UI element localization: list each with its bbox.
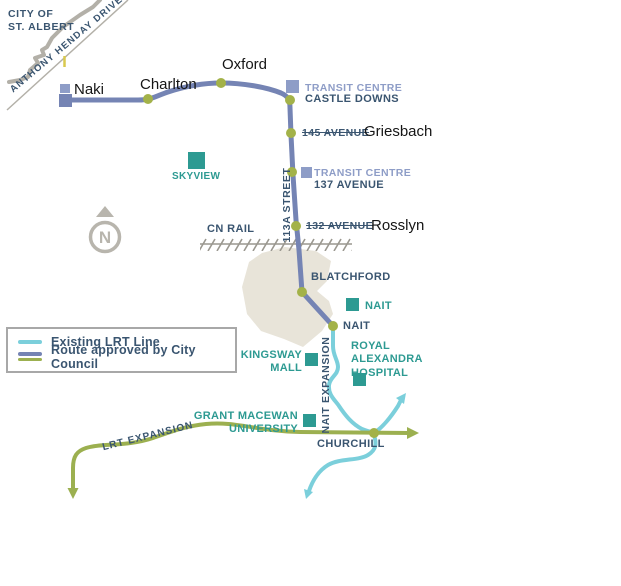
skyview-label: SKYVIEW [172, 171, 220, 182]
charlton-station-label: Charlton [140, 76, 197, 93]
kingsway-mall-square [305, 353, 318, 366]
rosslyn-station-label: Rosslyn [371, 217, 424, 234]
castle-downs-station-dot [285, 95, 295, 105]
legend: Existing LRT Line Route approved by City… [6, 327, 237, 373]
nait-station-dot [328, 321, 338, 331]
nait-station-label: NAIT [343, 320, 370, 332]
castle-downs-transit-centre-square [286, 80, 299, 93]
137-avenue-station-label: 137 AVENUE [314, 179, 384, 191]
griesbach-former-name-label: 145 AVENUE [302, 127, 369, 139]
skyview-square [188, 152, 205, 169]
137-avenue-transit-centre-square [301, 167, 312, 178]
city-of-st-albert-label: CITY OF ST. ALBERT [8, 8, 74, 34]
grant-macewan-university-label: GRANT MACEWAN UNIVERSITY [188, 410, 298, 437]
nait-landmark-label: NAIT [365, 300, 392, 312]
griesbach-station-dot [286, 128, 296, 138]
nait-square [346, 298, 359, 311]
naki-terminus-square [59, 94, 72, 107]
legend-approved-route-label: Route approved by City Council [51, 343, 235, 371]
rosslyn-former-name-label: 132 AVENUE [306, 220, 373, 232]
legend-item-approved-route: Route approved by City Council [18, 349, 235, 364]
cn-rail-label: CN RAIL [207, 223, 254, 235]
existing-lrt-swatch-icon [18, 340, 42, 344]
churchill-station-label: CHURCHILL [317, 438, 385, 450]
approved-route-swatch-icon [18, 352, 42, 361]
north-arrow-icon [96, 206, 114, 217]
blatchford-station-dot [297, 287, 307, 297]
113a-street-label: 113A STREET [281, 159, 293, 251]
blatchford-station-label: BLATCHFORD [311, 271, 391, 283]
lrt-expansion-arrow-east [407, 427, 419, 439]
existing-lrt-arrow-south [304, 489, 313, 499]
kingsway-mall-label: KINGSWAY MALL [230, 349, 302, 376]
137-avenue-transit-centre-label: TRANSIT CENTRE [314, 167, 411, 179]
charlton-station-dot [143, 94, 153, 104]
naki-station-label: Naki [74, 81, 104, 98]
oxford-station-label: Oxford [222, 56, 267, 73]
transit-map: CITY OF ST. ALBERT ANTHONY HENDAY DRIVE … [0, 0, 621, 586]
grant-macewan-square [303, 414, 316, 427]
oxford-station-dot [216, 78, 226, 88]
lrt-expansion-arrow-south [68, 488, 79, 499]
naki-transit-centre-square [60, 84, 70, 93]
castle-downs-station-label: CASTLE DOWNS [305, 93, 399, 105]
royal-alexandra-hospital-label: ROYAL ALEXANDRA HOSPITAL [351, 340, 423, 380]
nait-expansion-label: NAIT EXPANSION [320, 335, 332, 435]
existing-lrt-branch-northeast [375, 400, 401, 432]
blatchford-area-shape [242, 247, 333, 347]
compass-north-label: N [96, 228, 114, 248]
griesbach-station-label: Griesbach [364, 123, 432, 140]
churchill-station-dot [369, 428, 379, 438]
